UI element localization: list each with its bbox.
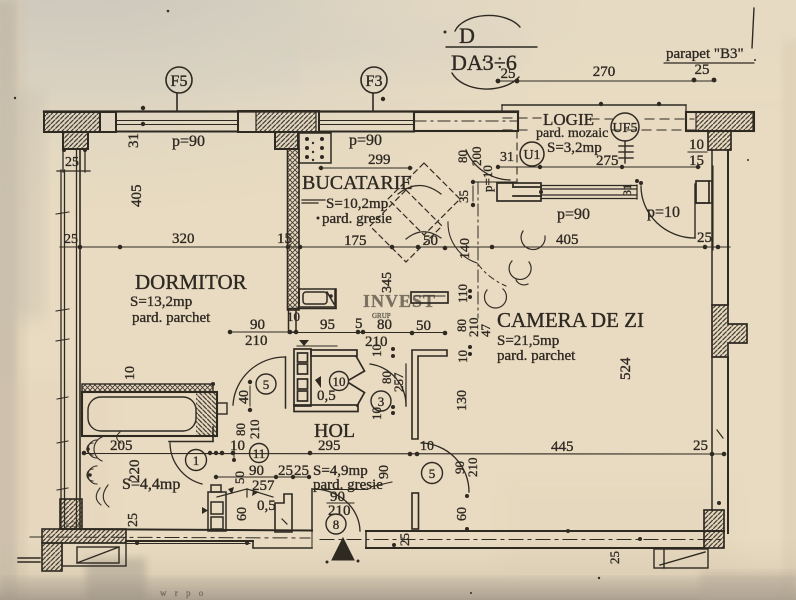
svg-text:10: 10 xyxy=(689,137,704,153)
svg-text:D: D xyxy=(459,23,475,48)
svg-text:80: 80 xyxy=(233,423,248,436)
svg-text:p=90: p=90 xyxy=(172,133,205,150)
svg-text:50: 50 xyxy=(416,318,431,334)
svg-text:GRUP: GRUP xyxy=(372,312,391,320)
svg-text:10: 10 xyxy=(287,309,300,324)
svg-text:524: 524 xyxy=(618,357,634,380)
svg-text:405: 405 xyxy=(129,185,145,208)
svg-text:60: 60 xyxy=(455,507,470,521)
svg-text:210: 210 xyxy=(328,503,351,519)
svg-text:1: 1 xyxy=(193,453,200,468)
svg-text:parapet "B3": parapet "B3" xyxy=(666,46,744,62)
svg-text:31: 31 xyxy=(620,184,634,196)
svg-text:210: 210 xyxy=(245,333,268,349)
svg-text:10: 10 xyxy=(333,374,346,389)
svg-text:110: 110 xyxy=(455,284,470,303)
svg-text:90: 90 xyxy=(377,465,392,479)
svg-text:CAMERA DE ZI: CAMERA DE ZI xyxy=(497,308,644,332)
svg-text:130: 130 xyxy=(455,390,470,411)
svg-text:80: 80 xyxy=(455,150,470,163)
svg-text:S=21,5mp: S=21,5mp xyxy=(497,333,559,349)
svg-text:F5: F5 xyxy=(171,73,188,90)
svg-text:25: 25 xyxy=(501,66,516,82)
svg-text:95: 95 xyxy=(320,317,335,333)
svg-text:F3: F3 xyxy=(366,73,383,90)
svg-text:25: 25 xyxy=(397,533,412,546)
svg-text:5: 5 xyxy=(355,316,363,332)
svg-text:w r p o: w r p o xyxy=(160,588,206,598)
svg-text:UF5: UF5 xyxy=(613,121,638,136)
svg-text:INVEST: INVEST xyxy=(363,291,436,311)
svg-text:5: 5 xyxy=(263,377,270,392)
svg-text:0,5: 0,5 xyxy=(257,498,276,514)
svg-text:200: 200 xyxy=(469,147,484,167)
svg-text:299: 299 xyxy=(368,152,391,168)
svg-text:210: 210 xyxy=(465,458,480,478)
svg-text:25: 25 xyxy=(607,551,622,564)
svg-text:8: 8 xyxy=(333,517,340,532)
svg-text:31: 31 xyxy=(500,150,514,165)
svg-text:pard. parchet: pard. parchet xyxy=(497,348,576,364)
svg-text:p=90: p=90 xyxy=(557,206,590,223)
svg-text:pard. gresie: pard. gresie xyxy=(322,211,392,227)
svg-text:10: 10 xyxy=(420,439,434,454)
svg-text:pard. parchet: pard. parchet xyxy=(132,310,211,326)
svg-text:U1: U1 xyxy=(523,148,540,163)
svg-text:445: 445 xyxy=(551,439,574,455)
svg-text:345: 345 xyxy=(380,272,395,293)
svg-text:10: 10 xyxy=(455,350,470,363)
svg-text:0,5: 0,5 xyxy=(317,388,336,404)
svg-text:25: 25 xyxy=(695,62,710,78)
svg-text:405: 405 xyxy=(556,232,579,248)
svg-text:3: 3 xyxy=(378,394,385,409)
svg-text:60: 60 xyxy=(235,507,250,521)
svg-text:257: 257 xyxy=(391,372,406,392)
svg-text:175: 175 xyxy=(344,233,367,249)
svg-text:c.20: c.20 xyxy=(66,520,80,529)
svg-text:320: 320 xyxy=(172,231,195,247)
svg-text:47: 47 xyxy=(478,324,493,338)
svg-text:25: 25 xyxy=(697,230,712,246)
svg-text:31: 31 xyxy=(126,133,142,148)
svg-text:5: 5 xyxy=(429,466,436,481)
svg-text:90: 90 xyxy=(250,317,265,333)
svg-text:S=3,2mp: S=3,2mp xyxy=(547,140,602,156)
svg-text:DORMITOR: DORMITOR xyxy=(135,270,247,294)
svg-text:10: 10 xyxy=(123,366,138,380)
svg-text:210: 210 xyxy=(247,420,262,440)
svg-text:270: 270 xyxy=(593,64,616,80)
svg-text:pard. mozaic: pard. mozaic xyxy=(536,126,608,141)
svg-text:25: 25 xyxy=(693,438,708,454)
svg-text:140: 140 xyxy=(458,238,473,259)
svg-text:p=10: p=10 xyxy=(647,204,680,221)
svg-text:25: 25 xyxy=(126,513,141,527)
svg-text:205: 205 xyxy=(110,438,133,454)
svg-text:295: 295 xyxy=(318,438,341,454)
svg-text:S=10,2mp: S=10,2mp xyxy=(326,196,388,212)
svg-text:10: 10 xyxy=(369,344,384,357)
svg-text:10: 10 xyxy=(369,407,384,420)
svg-text:S=4,4mp: S=4,4mp xyxy=(122,476,180,493)
svg-text:p=10: p=10 xyxy=(480,165,495,192)
svg-text:257: 257 xyxy=(252,478,275,494)
svg-text:S=13,2mp: S=13,2mp xyxy=(130,294,192,310)
svg-text:p=90: p=90 xyxy=(349,132,382,149)
